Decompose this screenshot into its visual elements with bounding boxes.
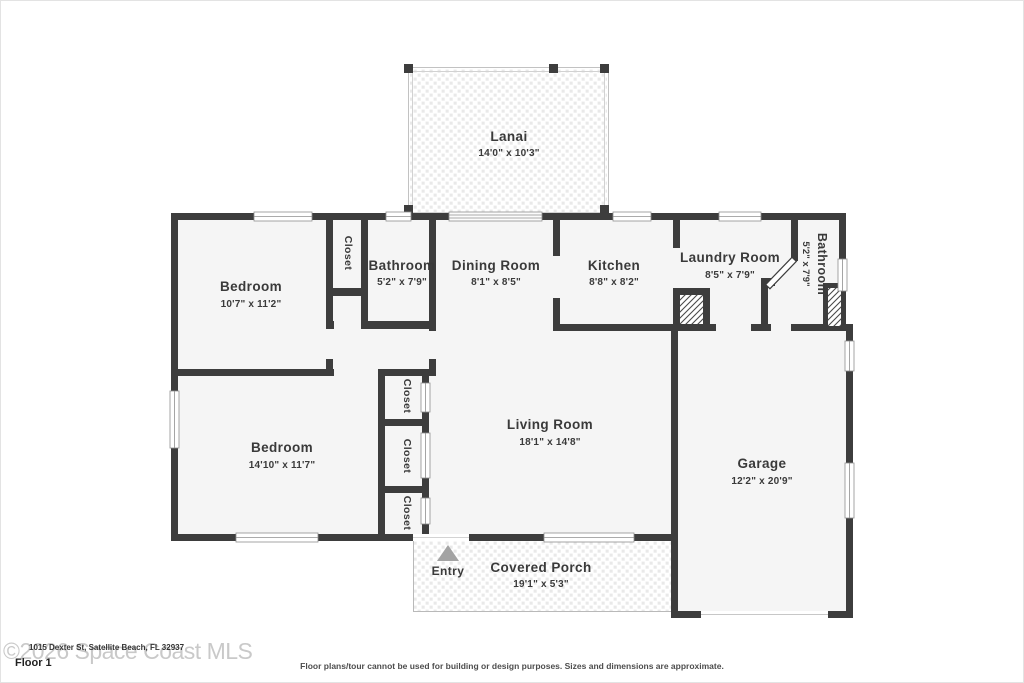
room-name: Lanai bbox=[490, 129, 527, 144]
room-name: Bathroom bbox=[815, 233, 829, 295]
room-name: Kitchen bbox=[588, 258, 640, 273]
room-dims: 5'2" x 7'9" bbox=[800, 241, 811, 286]
room-closet2: Closet bbox=[401, 379, 413, 414]
address-text: 1015 Dexter St, Satellite Beach, FL 3293… bbox=[29, 643, 184, 652]
room-name: Closet bbox=[342, 236, 354, 271]
room-name: Garage bbox=[738, 456, 787, 471]
room-dims: 8'1" x 8'5" bbox=[471, 277, 521, 288]
floor-plan-page: Lanai 14'0" x 10'3" Bedroom 10'7" x 11'2… bbox=[0, 0, 1024, 683]
entry-label: Entry bbox=[432, 564, 465, 578]
room-closet3: Closet bbox=[401, 439, 413, 474]
room-dims: 10'7" x 11'2" bbox=[221, 299, 282, 310]
room-dims: 19'1" x 5'3" bbox=[513, 579, 569, 590]
room-dims: 8'8" x 8'2" bbox=[589, 277, 639, 288]
room-name: Living Room bbox=[507, 417, 593, 432]
room-name: Laundry Room bbox=[680, 250, 780, 265]
room-dims: 14'10" x 11'7" bbox=[249, 460, 316, 471]
room-name: Closet bbox=[401, 496, 413, 531]
room-dims: 14'0" x 10'3" bbox=[478, 148, 539, 159]
room-name: Covered Porch bbox=[490, 560, 591, 575]
room-dims: 12'2" x 20'9" bbox=[731, 476, 792, 487]
room-name: Bedroom bbox=[220, 279, 282, 294]
disclaimer-text: Floor plans/tour cannot be used for buil… bbox=[1, 661, 1023, 671]
floor-plan: Lanai 14'0" x 10'3" Bedroom 10'7" x 11'2… bbox=[1, 1, 1024, 683]
room-name: Closet bbox=[401, 379, 413, 414]
room-name: Dining Room bbox=[452, 258, 540, 273]
room-name: Bathroom bbox=[369, 258, 436, 273]
room-dims: 8'5" x 7'9" bbox=[705, 270, 755, 281]
room-dims: 18'1" x 14'8" bbox=[519, 437, 580, 448]
room-name: Closet bbox=[401, 439, 413, 474]
room-name: Bedroom bbox=[251, 440, 313, 455]
room-dims: 5'2" x 7'9" bbox=[377, 277, 427, 288]
room-closet4: Closet bbox=[401, 496, 413, 531]
room-closet1: Closet bbox=[342, 236, 354, 271]
